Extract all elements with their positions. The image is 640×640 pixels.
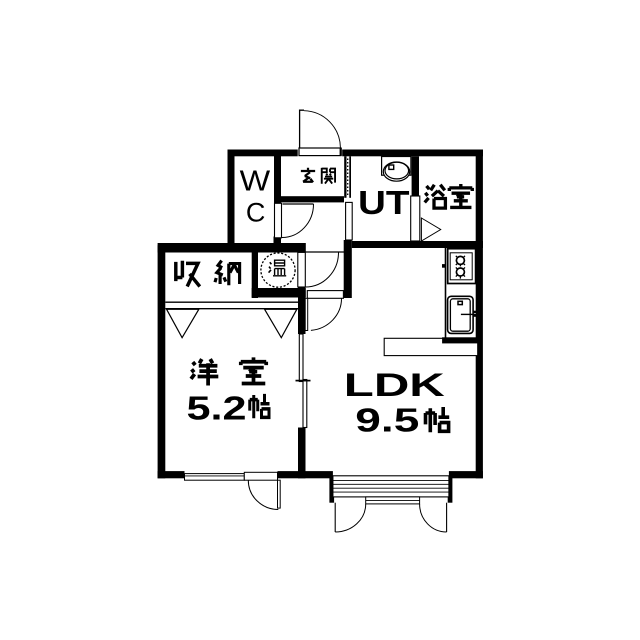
svg-text:C: C — [246, 198, 266, 228]
svg-text:LDK: LDK — [344, 367, 445, 403]
svg-text:UT: UT — [358, 184, 410, 221]
svg-text:W: W — [240, 166, 271, 198]
svg-text:5.2: 5.2 — [187, 390, 247, 427]
svg-text:9.5: 9.5 — [355, 402, 419, 439]
